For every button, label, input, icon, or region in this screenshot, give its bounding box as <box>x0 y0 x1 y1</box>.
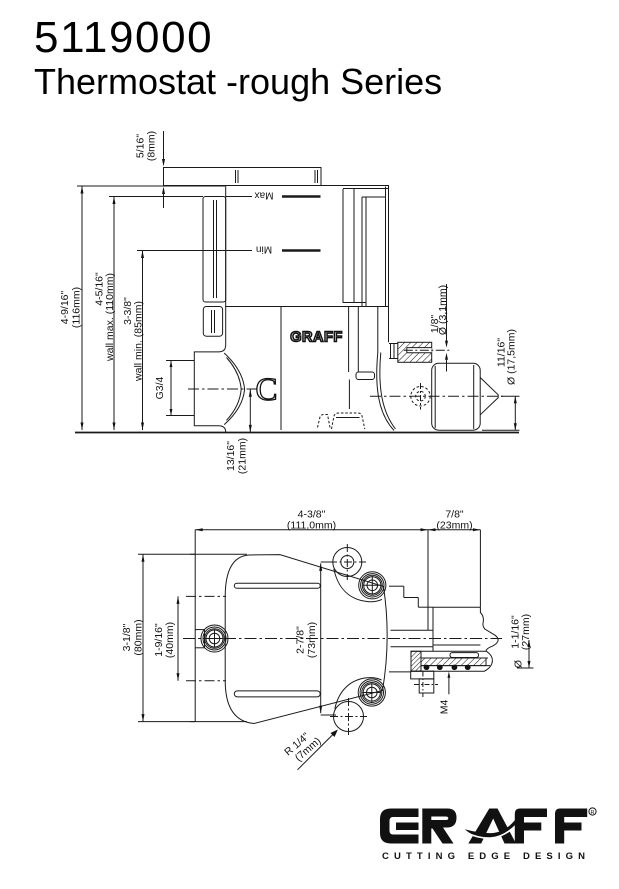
svg-text:(80mm): (80mm) <box>133 619 145 655</box>
svg-text:Ø: Ø <box>513 660 525 668</box>
svg-text:M4: M4 <box>439 700 451 715</box>
svg-text:(116mm): (116mm) <box>71 287 83 328</box>
svg-text:GRAFF: GRAFF <box>290 330 342 346</box>
svg-text:(73mm): (73mm) <box>306 622 318 658</box>
svg-text:wall min. (85mm): wall min. (85mm) <box>133 301 145 382</box>
svg-text:(21mm): (21mm) <box>237 438 249 474</box>
svg-text:Ø (17,5mm): Ø (17,5mm) <box>506 329 518 385</box>
svg-text:G3/4: G3/4 <box>154 376 166 399</box>
svg-text:4-9/16": 4-9/16" <box>59 290 71 324</box>
svg-text:(40mm): (40mm) <box>164 622 176 658</box>
svg-text:13/16": 13/16" <box>225 441 237 471</box>
svg-text:Max: Max <box>255 190 274 201</box>
svg-text:5119000: 5119000 <box>34 13 213 62</box>
svg-text:3-1/8": 3-1/8" <box>121 623 133 651</box>
svg-text:wall max. (110mm): wall max. (110mm) <box>104 273 116 362</box>
svg-text:Min: Min <box>256 244 272 255</box>
svg-text:Ø (3,1mm): Ø (3,1mm) <box>437 285 449 335</box>
svg-text:R: R <box>591 810 595 816</box>
svg-text:(23mm): (23mm) <box>436 520 472 532</box>
svg-text:(27mm): (27mm) <box>520 614 532 650</box>
svg-text:2-7/8": 2-7/8" <box>295 626 307 654</box>
svg-text:(111,0mm): (111,0mm) <box>287 520 336 532</box>
svg-text:(8mm): (8mm) <box>146 131 158 161</box>
svg-text:Thermostat -rough Series: Thermostat -rough Series <box>34 61 442 102</box>
svg-text:C: C <box>255 372 277 408</box>
